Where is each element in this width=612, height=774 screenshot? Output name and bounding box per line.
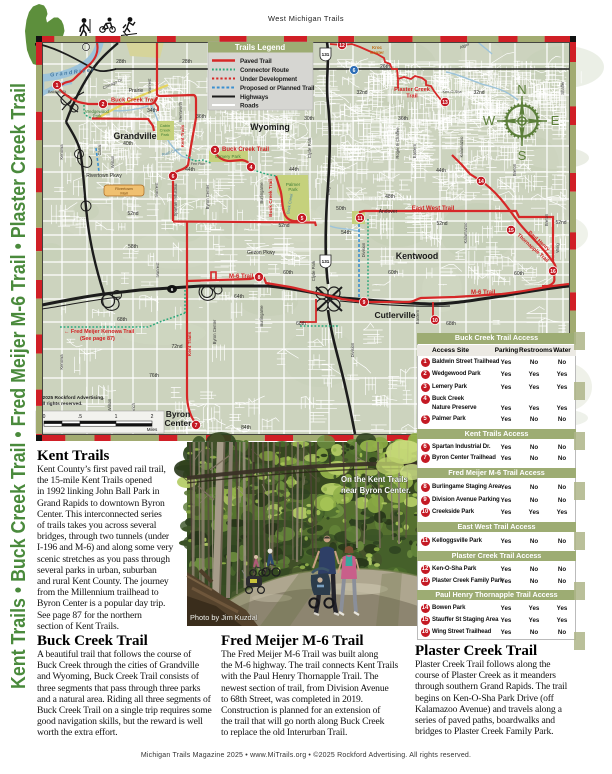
svg-text:68th: 68th bbox=[446, 321, 456, 327]
svg-text:near Byron Center.: near Byron Center. bbox=[341, 486, 411, 495]
svg-text:7: 7 bbox=[195, 423, 198, 429]
svg-text:64th: 64th bbox=[234, 294, 244, 300]
svg-text:84th: 84th bbox=[241, 425, 251, 431]
svg-text:68th: 68th bbox=[296, 321, 306, 327]
svg-text:Photo by Jim Kuzdal: Photo by Jim Kuzdal bbox=[190, 613, 258, 622]
svg-text:Michigan Trails Magazine 2025: Michigan Trails Magazine 2025 • www.MiTr… bbox=[141, 751, 471, 759]
svg-text:Wyoming: Wyoming bbox=[250, 122, 289, 132]
svg-text:Wilson: Wilson bbox=[110, 155, 115, 168]
svg-text:44th: 44th bbox=[436, 168, 446, 174]
svg-text:28th: 28th bbox=[182, 59, 192, 65]
svg-text:5: 5 bbox=[301, 216, 304, 222]
svg-text:Wentworth: Wentworth bbox=[178, 101, 183, 122]
svg-text:East West Trail: East West Trail bbox=[412, 206, 455, 212]
svg-text:Clay: Clay bbox=[326, 186, 331, 195]
svg-text:Mall: Mall bbox=[120, 191, 127, 196]
svg-text:Kalamazoo: Kalamazoo bbox=[463, 222, 468, 244]
svg-text:Division: Division bbox=[361, 242, 366, 257]
svg-text:.5: .5 bbox=[78, 414, 82, 420]
svg-text:131: 131 bbox=[322, 52, 330, 57]
svg-text:26th: 26th bbox=[380, 64, 390, 70]
svg-text:Cutlerville: Cutlerville bbox=[374, 310, 415, 320]
svg-text:(See page 87): (See page 87) bbox=[80, 336, 115, 342]
svg-text:Park: Park bbox=[161, 132, 169, 137]
svg-text:Eastern: Eastern bbox=[412, 143, 417, 158]
svg-text:Breton: Breton bbox=[512, 163, 517, 176]
svg-text:36th: 36th bbox=[398, 116, 408, 122]
svg-text:60th: 60th bbox=[388, 270, 398, 276]
svg-text:All rights reserved.: All rights reserved. bbox=[39, 401, 82, 407]
svg-text:Buck Creek Trail: Buck Creek Trail bbox=[268, 179, 274, 217]
svg-text:Kent Trails: Kent Trails bbox=[180, 124, 185, 147]
svg-text:Lemery Park: Lemery Park bbox=[215, 154, 241, 159]
svg-text:Ken-O-Sha: Ken-O-Sha bbox=[443, 90, 463, 94]
svg-text:6: 6 bbox=[353, 68, 356, 74]
svg-text:Eastern: Eastern bbox=[415, 309, 420, 324]
svg-text:Baldwin St: Baldwin St bbox=[48, 90, 67, 94]
svg-text:30th: 30th bbox=[304, 116, 314, 122]
svg-text:4: 4 bbox=[250, 165, 253, 171]
svg-text:32nd: 32nd bbox=[356, 90, 367, 96]
svg-text:12: 12 bbox=[339, 43, 345, 49]
svg-text:50th: 50th bbox=[336, 206, 346, 212]
svg-text:54th: 54th bbox=[341, 230, 351, 236]
svg-text:Clyde Park: Clyde Park bbox=[311, 260, 316, 281]
svg-text:Plaster Creek: Plaster Creek bbox=[394, 87, 431, 93]
svg-text:Breton: Breton bbox=[544, 213, 549, 226]
svg-text:15: 15 bbox=[508, 228, 514, 234]
svg-text:0: 0 bbox=[43, 414, 46, 420]
svg-text:68th: 68th bbox=[117, 317, 127, 323]
svg-text:Rivertown Pkwy: Rivertown Pkwy bbox=[86, 173, 122, 179]
svg-text:10: 10 bbox=[432, 318, 438, 324]
svg-text:©2025 Rockford Advertising.: ©2025 Rockford Advertising. bbox=[39, 394, 104, 401]
svg-text:Canal: Canal bbox=[97, 144, 102, 155]
svg-text:Paved Trail: Paved Trail bbox=[240, 58, 272, 65]
svg-text:40th: 40th bbox=[123, 141, 133, 147]
svg-text:Kenowa: Kenowa bbox=[59, 354, 64, 370]
svg-text:Kalamazoo: Kalamazoo bbox=[459, 136, 464, 158]
svg-text:52nd: 52nd bbox=[278, 223, 289, 229]
svg-text:West Michigan Trails: West Michigan Trails bbox=[268, 14, 344, 23]
svg-text:Division: Division bbox=[350, 342, 355, 357]
svg-text:Buck Creek Trail: Buck Creek Trail bbox=[111, 98, 157, 104]
svg-text:44th: 44th bbox=[185, 167, 195, 173]
svg-text:M-6 Trail: M-6 Trail bbox=[229, 274, 254, 280]
svg-text:9: 9 bbox=[363, 300, 366, 306]
svg-text:11: 11 bbox=[357, 216, 363, 222]
svg-text:Fen Run: Fen Run bbox=[191, 162, 206, 166]
svg-text:76th: 76th bbox=[149, 373, 159, 379]
svg-text:Kenowa: Kenowa bbox=[59, 144, 64, 160]
svg-text:131: 131 bbox=[322, 259, 330, 264]
svg-text:1: 1 bbox=[56, 83, 59, 89]
svg-text:Proposed or Planned Trail: Proposed or Planned Trail bbox=[240, 85, 315, 92]
svg-text:On the Kent Trails: On the Kent Trails bbox=[341, 475, 408, 484]
svg-text:Trails Legend: Trails Legend bbox=[235, 43, 285, 52]
svg-text:48th: 48th bbox=[385, 194, 395, 200]
svg-text:Byron Center: Byron Center bbox=[205, 184, 210, 209]
svg-text:Wilson: Wilson bbox=[107, 398, 112, 411]
svg-text:44th: 44th bbox=[289, 167, 299, 173]
svg-text:Byron Center: Byron Center bbox=[212, 319, 217, 344]
svg-text:Ivanrest: Ivanrest bbox=[155, 262, 160, 278]
svg-text:3: 3 bbox=[214, 148, 217, 154]
svg-text:Shaffer: Shaffer bbox=[560, 81, 565, 95]
svg-text:Connector Route: Connector Route bbox=[240, 67, 289, 74]
svg-text:Spartan Industrial: Spartan Industrial bbox=[173, 184, 178, 217]
svg-text:S: S bbox=[518, 148, 527, 163]
svg-text:58th: 58th bbox=[128, 244, 138, 250]
svg-text:28th: 28th bbox=[116, 59, 126, 65]
svg-text:16: 16 bbox=[550, 269, 556, 275]
svg-text:52nd: 52nd bbox=[436, 221, 447, 227]
svg-text:Burlingame: Burlingame bbox=[259, 305, 264, 327]
svg-text:Clyde Park: Clyde Park bbox=[307, 137, 312, 158]
svg-text:Prairie: Prairie bbox=[129, 88, 144, 94]
svg-text:Ivanrest: Ivanrest bbox=[154, 182, 159, 198]
svg-text:Kent Trails • Buck Creek Trail: Kent Trails • Buck Creek Trail • Fred Me… bbox=[7, 83, 30, 689]
svg-text:E: E bbox=[551, 113, 560, 128]
svg-text:Under Development: Under Development bbox=[240, 76, 298, 83]
svg-text:Wing: Wing bbox=[555, 243, 560, 253]
svg-text:2: 2 bbox=[102, 102, 105, 108]
svg-text:W: W bbox=[483, 113, 496, 128]
svg-text:8: 8 bbox=[258, 275, 261, 281]
svg-text:6: 6 bbox=[171, 287, 174, 292]
svg-text:Ivanrest: Ivanrest bbox=[147, 78, 152, 94]
svg-text:14: 14 bbox=[478, 179, 484, 185]
svg-text:Miles: Miles bbox=[147, 427, 158, 432]
svg-text:52nd: 52nd bbox=[555, 220, 566, 226]
svg-text:Trail: Trail bbox=[406, 94, 418, 100]
svg-text:Park: Park bbox=[288, 187, 298, 192]
svg-text:52nd: 52nd bbox=[127, 211, 138, 217]
svg-text:Roads: Roads bbox=[240, 103, 259, 110]
svg-text:Center: Center bbox=[370, 50, 384, 55]
svg-text:1: 1 bbox=[115, 414, 118, 420]
svg-text:Center: Center bbox=[165, 418, 193, 428]
svg-text:2: 2 bbox=[151, 414, 154, 420]
svg-text:Kentwood: Kentwood bbox=[396, 251, 439, 261]
svg-text:N: N bbox=[517, 82, 526, 97]
svg-text:6: 6 bbox=[172, 174, 175, 180]
svg-text:32nd: 32nd bbox=[473, 90, 484, 96]
svg-text:Highways: Highways bbox=[240, 94, 269, 101]
svg-text:Burlingame: Burlingame bbox=[259, 182, 264, 204]
svg-text:34th: 34th bbox=[147, 108, 157, 114]
svg-text:← Fred Meijer Kenowa Trail: ← Fred Meijer Kenowa Trail bbox=[64, 329, 135, 335]
svg-text:Andover: Andover bbox=[379, 209, 398, 215]
svg-text:60th: 60th bbox=[514, 271, 524, 277]
svg-text:Gezon Pkwy: Gezon Pkwy bbox=[247, 250, 276, 256]
svg-text:Park: Park bbox=[93, 114, 103, 119]
svg-text:Buck Creek Trail: Buck Creek Trail bbox=[222, 147, 269, 153]
svg-text:72nd: 72nd bbox=[171, 344, 182, 350]
svg-text:Grandville: Grandville bbox=[113, 131, 156, 141]
svg-text:Kent Trails: Kent Trails bbox=[187, 331, 193, 356]
svg-text:36th: 36th bbox=[196, 114, 206, 120]
svg-text:60th: 60th bbox=[283, 270, 293, 276]
svg-text:M-6 Trail: M-6 Trail bbox=[471, 290, 496, 296]
svg-text:Roger B Chaffee: Roger B Chaffee bbox=[395, 127, 400, 159]
svg-text:13: 13 bbox=[442, 100, 448, 106]
